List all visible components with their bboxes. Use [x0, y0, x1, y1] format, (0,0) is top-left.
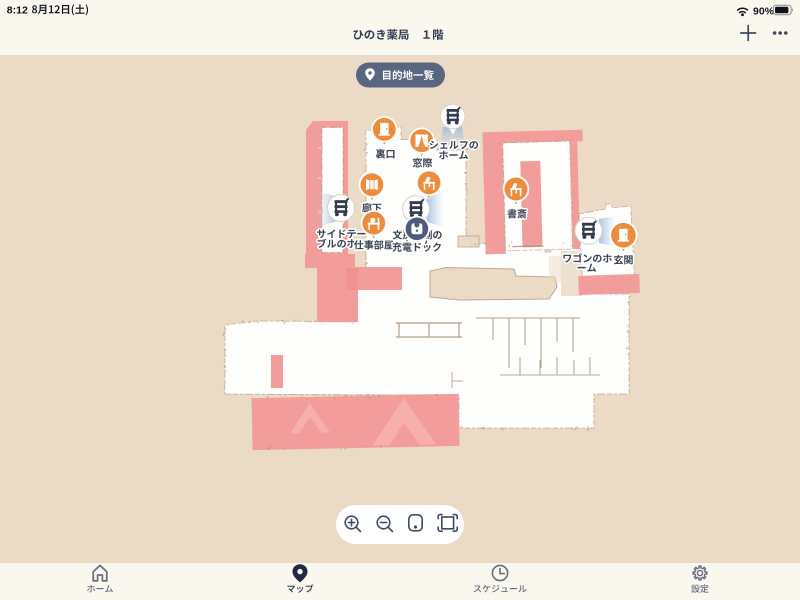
svg-text:90%: 90%: [753, 5, 775, 17]
svg-text:8:12: 8:12: [7, 4, 28, 16]
